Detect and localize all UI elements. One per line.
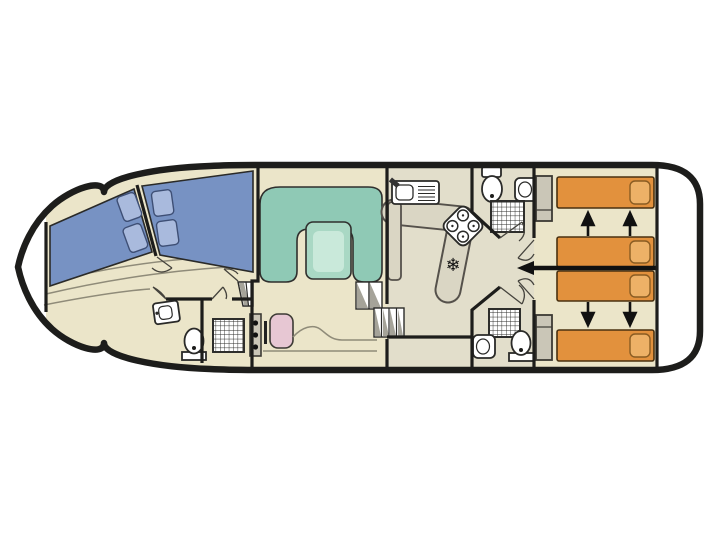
toilet-aft-bottom-flush-dot [519, 348, 523, 352]
helm-instrument-dot [253, 344, 258, 349]
shower-aft-top-grid [491, 201, 524, 232]
galley-sink [389, 178, 439, 204]
pillow-aft-1 [630, 181, 650, 204]
shower-aft-top [491, 201, 524, 232]
stern-deck [657, 160, 717, 376]
galley-side-counter [388, 202, 401, 280]
toilet-bow-flush-dot [192, 346, 196, 350]
stairs-aft [374, 308, 404, 337]
bow-anchor-locker [0, 160, 46, 376]
toilet-aft-top [482, 176, 502, 202]
pillow-aft-2 [630, 241, 650, 263]
table-salon-top [313, 231, 344, 272]
helm-seat [270, 314, 293, 348]
pillow-aft-3 [630, 275, 650, 297]
pillow-bow-right-1 [151, 189, 174, 217]
pillow-aft-4 [630, 334, 650, 357]
wardrobe-aft-top [536, 176, 552, 221]
boat-floor-plan: ❄ [0, 0, 720, 540]
toilet-aft-top-flush-dot [490, 194, 494, 198]
helm-instrument-dot [253, 320, 258, 325]
steps-salon [356, 282, 382, 309]
pillow-bow-right-2 [156, 219, 179, 247]
floor-plan-canvas: ❄ [0, 0, 720, 540]
helm-instrument-dot [253, 332, 258, 337]
shower-bow [213, 319, 244, 352]
shower-bow-grid [213, 319, 244, 352]
fridge-icon: ❄ [445, 255, 460, 276]
wardrobe-aft-bottom [536, 315, 552, 360]
